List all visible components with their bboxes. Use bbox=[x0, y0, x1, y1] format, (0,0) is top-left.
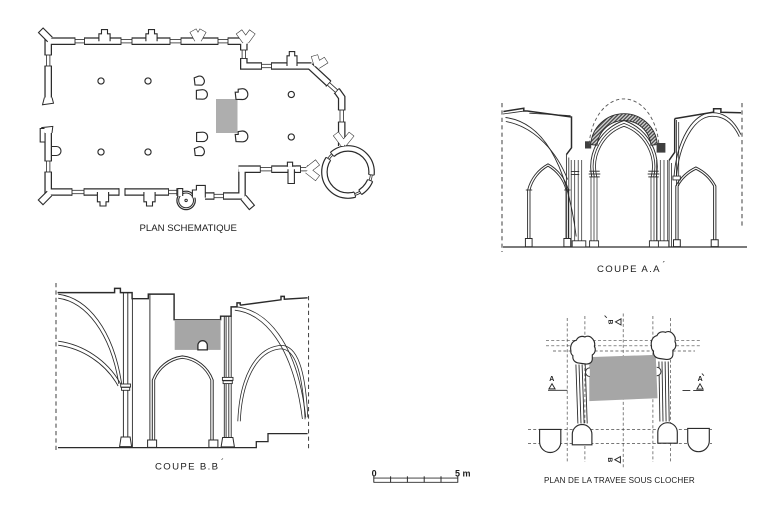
svg-text:PLAN DE LA TRAVEE SOUS CLOCHER: PLAN DE LA TRAVEE SOUS CLOCHER bbox=[544, 476, 695, 485]
svg-text:COUPE B.B: COUPE B.B bbox=[155, 462, 219, 473]
svg-text:B: B bbox=[607, 319, 614, 324]
svg-text:PLAN SCHEMATIQUE: PLAN SCHEMATIQUE bbox=[140, 223, 237, 234]
svg-text:COUPE A.A: COUPE A.A bbox=[597, 264, 661, 275]
svg-text:A: A bbox=[549, 376, 554, 383]
svg-text:B: B bbox=[606, 457, 613, 462]
svg-text:0: 0 bbox=[372, 468, 377, 478]
svg-text:´: ´ bbox=[663, 260, 666, 270]
svg-text:5 m: 5 m bbox=[455, 468, 471, 478]
svg-text:A: A bbox=[698, 376, 703, 383]
svg-text:´: ´ bbox=[221, 458, 224, 468]
